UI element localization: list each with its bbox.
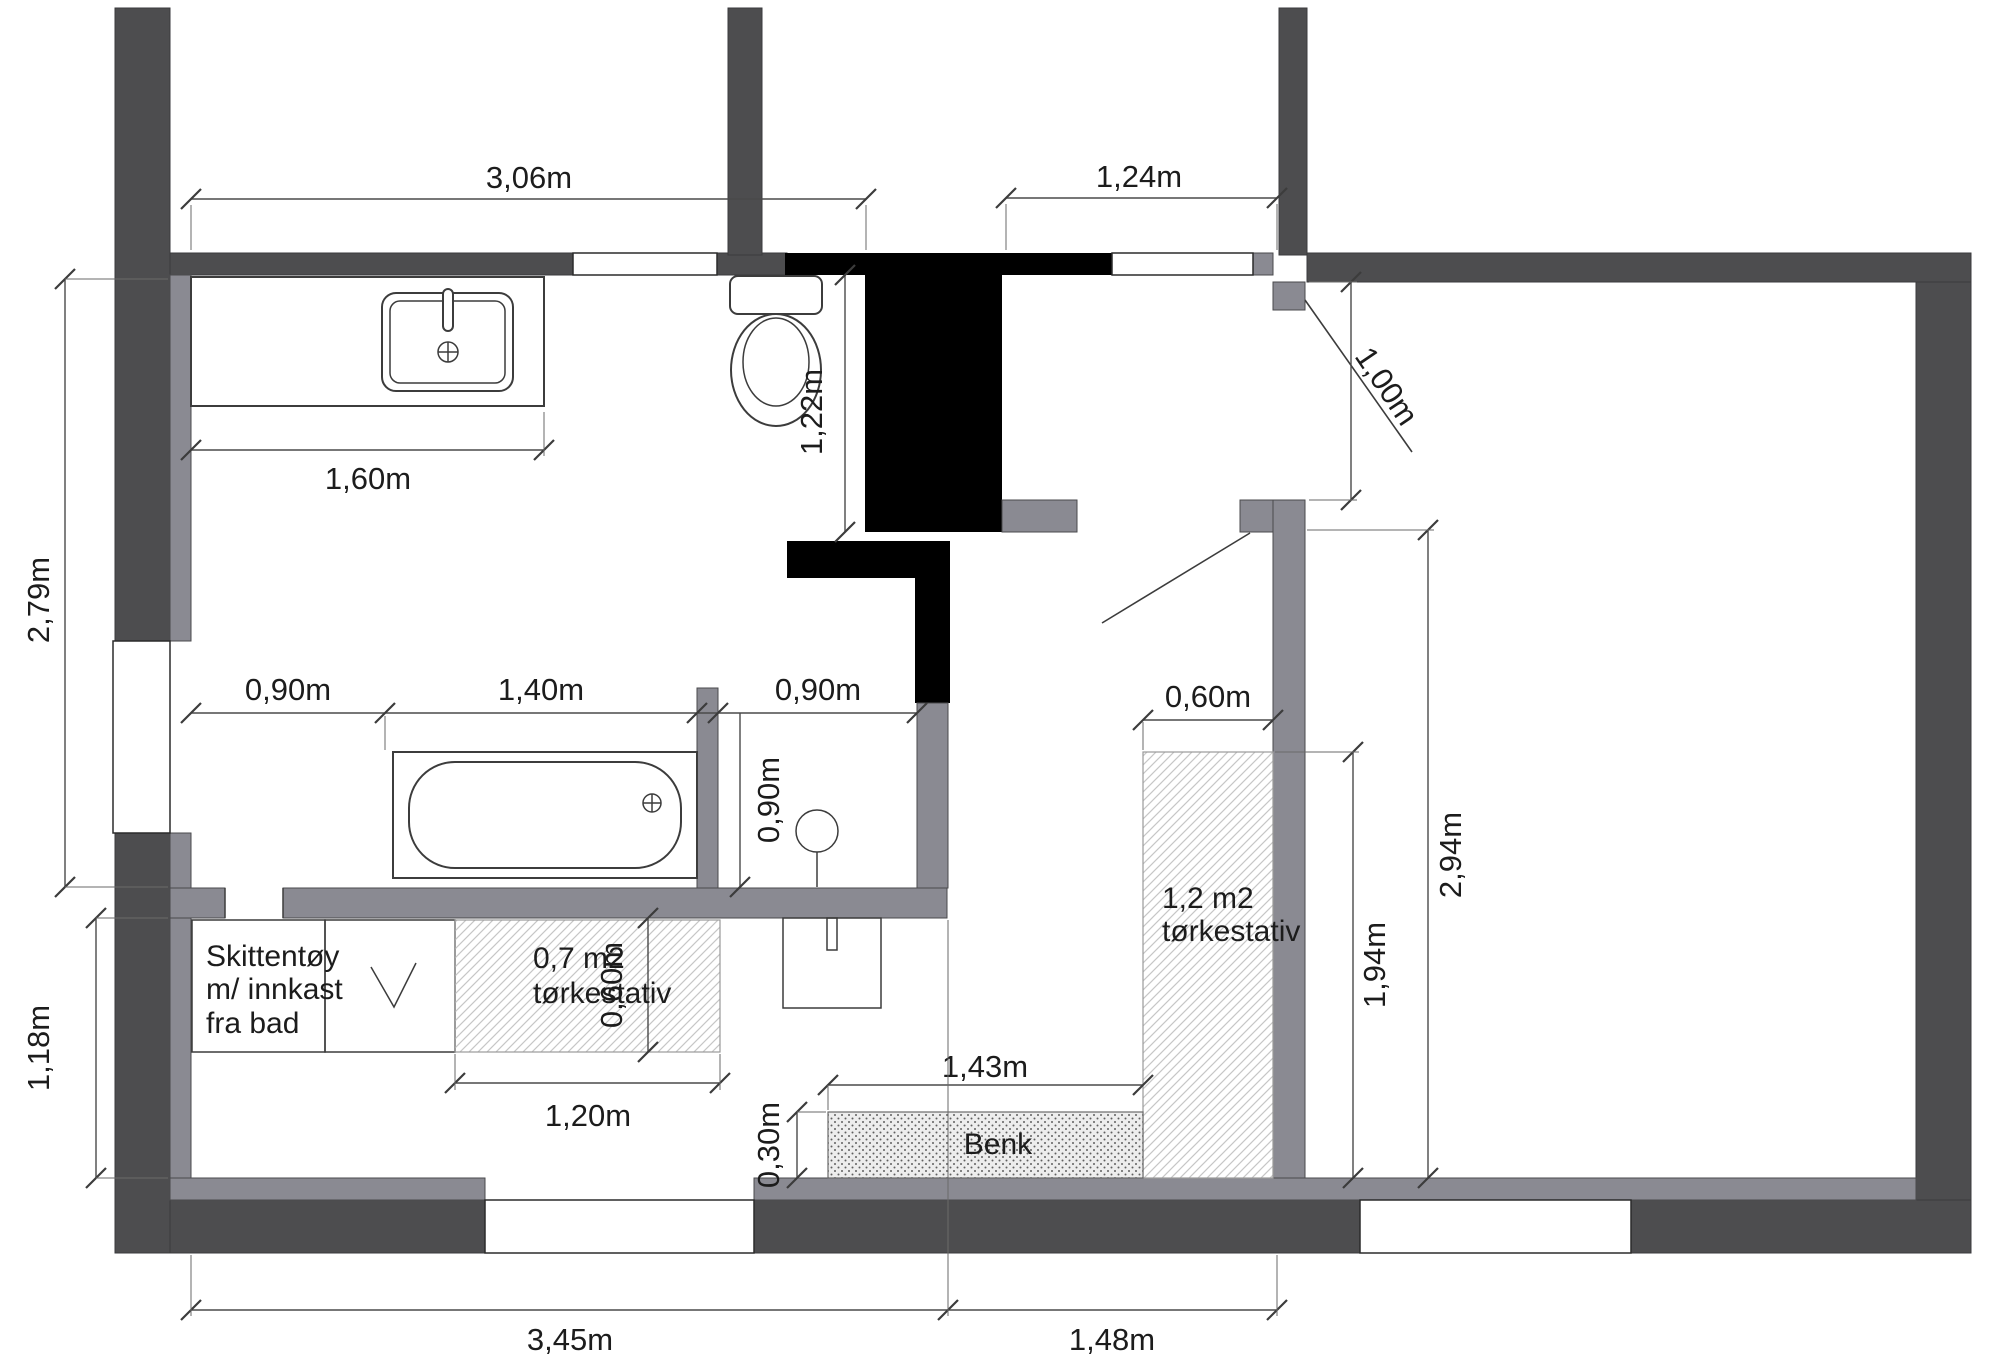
window-left	[113, 641, 170, 833]
bath-bottom-wall-stub	[170, 888, 225, 918]
wall-bottom-c	[1631, 1200, 1971, 1253]
floor-strip-right	[754, 1178, 1916, 1200]
bench-label: Benk	[964, 1128, 1033, 1161]
laundry-chute-label-2: m/ innkast	[206, 973, 343, 1006]
chute-v-symbol	[371, 963, 416, 1007]
exterior-walls	[115, 8, 1971, 1253]
laundry-sink	[783, 918, 881, 1008]
dim-label: 0,90m	[775, 672, 861, 707]
toilet-tank	[730, 276, 822, 314]
dim-nook-depth: 0,90m	[730, 713, 786, 897]
fixtures	[191, 276, 1273, 1178]
dim-label: 0,30m	[751, 1102, 786, 1188]
dim-label: 1,20m	[545, 1098, 631, 1133]
window-top-bathroom	[573, 253, 717, 275]
laundry-chute-label-1: Skittentøy	[206, 940, 339, 973]
dim-rack-large-width: 0,60m	[1133, 679, 1283, 750]
wall-bottom-a	[170, 1200, 485, 1253]
dim-label: 1,43m	[942, 1049, 1028, 1084]
rack-small-label-2: tørkestativ	[533, 977, 671, 1010]
closet-bottom-stub-right	[1240, 500, 1273, 532]
floor-plan-drawing: 3,06m 1,24m 1,60m 2,79m	[0, 0, 2000, 1370]
wall-top-right	[1307, 253, 1971, 282]
bathtub-inner	[409, 762, 681, 868]
wall-left	[115, 8, 170, 1253]
dim-bench-width: 1,43m	[818, 1049, 1153, 1110]
chimney-main	[865, 253, 1002, 532]
dim-label: 1,40m	[498, 672, 584, 707]
nook-basin	[796, 810, 838, 852]
dim-label: 0,90m	[751, 757, 786, 843]
dim-rack-small-width: 1,20m	[445, 1054, 730, 1133]
laundry-sink-tap	[827, 918, 837, 950]
chimney-shaft	[785, 253, 1112, 703]
hall-right-wall	[1273, 500, 1305, 1200]
closet-window-pier	[1253, 253, 1273, 275]
chimney-bar	[787, 541, 950, 578]
rack-large-label-2: tørkestativ	[1162, 915, 1300, 948]
chimney-column	[915, 578, 950, 703]
wall-bottom-b	[754, 1200, 1360, 1253]
dim-vanity-width: 1,60m	[181, 412, 554, 496]
floor-plan-canvas: 3,06m 1,24m 1,60m 2,79m	[0, 0, 2000, 1370]
wall-top-left	[170, 253, 573, 275]
dim-top-right-width: 1,24m	[996, 159, 1287, 250]
dim-bench-depth: 0,30m	[751, 1102, 826, 1188]
dim-label: 1,22m	[794, 369, 829, 455]
wall-right	[1916, 282, 1971, 1253]
window-top-closet	[1112, 253, 1253, 275]
window-bottom-right-room	[1360, 1200, 1631, 1253]
drying-rack-large	[1143, 752, 1273, 1178]
dim-label: 2,79m	[21, 557, 56, 643]
bath-bottom-wall	[283, 888, 947, 918]
rack-large-label-1: 1,2 m2	[1162, 882, 1254, 915]
wall-top-right-stub	[1279, 8, 1307, 255]
dim-label: 1,00m	[1348, 341, 1425, 432]
dim-label: 0,90m	[245, 672, 331, 707]
window-bottom-laundry	[485, 1200, 754, 1253]
dim-label: 0,60m	[1165, 679, 1251, 714]
dim-hall-height: 2,94m	[1307, 520, 1468, 1188]
finish-strip-left-upper	[170, 275, 191, 641]
rack-small-label-1: 0,7 m2	[533, 942, 625, 975]
dim-label: 1,94m	[1357, 922, 1392, 1008]
vanity-faucet	[443, 289, 453, 331]
dim-middle-row: 0,90m 1,40m 0,90m	[181, 672, 927, 750]
finish-strip-left-lower	[170, 833, 191, 1178]
door-leaf-closet-bottom	[1102, 533, 1250, 623]
laundry-chute-label-3: fra bad	[206, 1007, 299, 1040]
nook-right-wall	[917, 703, 948, 888]
nook-left-wall	[697, 688, 718, 888]
dim-label: 1,60m	[325, 461, 411, 496]
wall-top-pier	[717, 253, 787, 275]
dim-top-left-width: 3,06m	[181, 160, 876, 250]
dim-label: 3,06m	[486, 160, 572, 195]
wall-top-middle-stub	[728, 8, 762, 255]
dim-label: 2,94m	[1433, 812, 1468, 898]
dim-label: 1,18m	[21, 1005, 56, 1091]
dim-label: 3,45m	[527, 1322, 613, 1357]
hamper-box	[325, 920, 455, 1052]
closet-bottom-stub-left	[1002, 500, 1077, 532]
dim-label: 1,48m	[1069, 1322, 1155, 1357]
dim-label: 1,24m	[1096, 159, 1182, 194]
floor-strip-left	[170, 1178, 485, 1200]
closet-right-wall-top	[1273, 282, 1305, 310]
dim-closet-door-width: 1,00m	[1309, 272, 1425, 510]
